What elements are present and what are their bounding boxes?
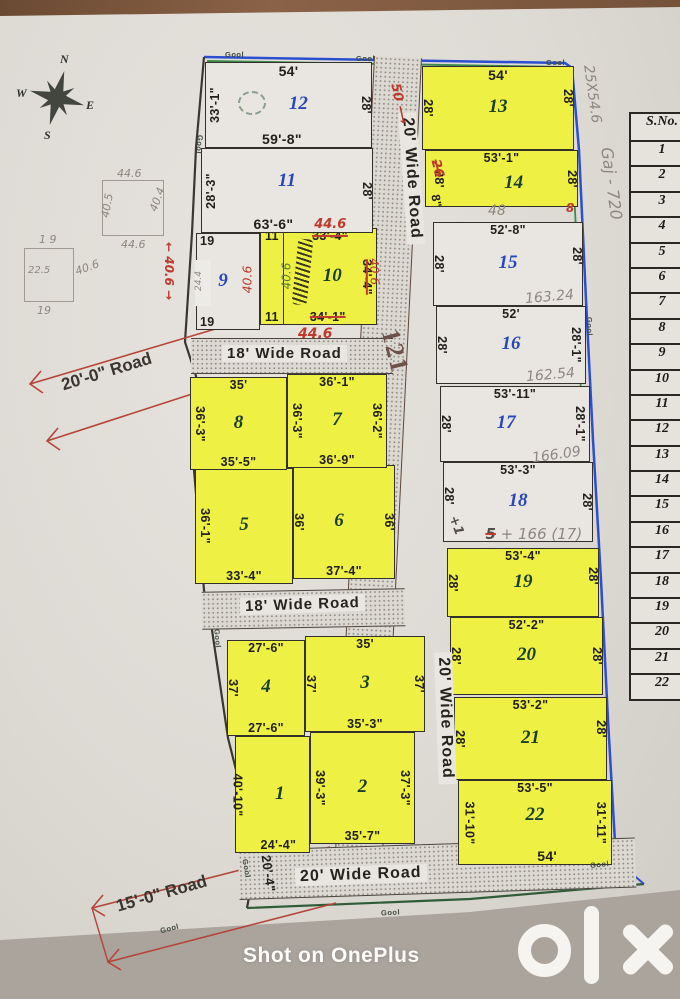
dim-left: 28'-3"	[204, 173, 218, 209]
sk2-left: 22.5	[28, 265, 50, 276]
pencil-area: 163.24	[524, 287, 574, 307]
dim-top: 36'-1"	[319, 375, 355, 389]
ink-scribble	[292, 238, 314, 305]
table-row: 1	[631, 140, 680, 165]
red-40-6: 40.6	[240, 266, 255, 294]
plot-22: 53'-5" 31'-10" 31'-11" 22 54'	[458, 780, 612, 865]
dim-top: 53'-1"	[484, 151, 520, 165]
dim-bottom: 59'-8"	[262, 131, 302, 147]
table-row: 16	[631, 521, 680, 546]
dim-right: 28'	[360, 182, 374, 200]
gool-label: Gool	[225, 50, 244, 59]
table-row: 10	[631, 369, 680, 394]
plot-7: 36'-1" 36'-3" 36'-2" 7 36'-9"	[287, 374, 387, 468]
table-row: 21	[631, 648, 680, 673]
plot-18: 53'-3" 28' +1 28' 18 5 + 166 (17)	[443, 462, 593, 542]
dim-top: 53'-3"	[500, 463, 536, 477]
table-row: 11	[631, 394, 680, 419]
dim-left: 36'-1"	[198, 508, 212, 544]
dim-left: 31'-10"	[462, 801, 476, 844]
photo-of-plot-map: N W E S 20' Wide Road 20' Wide Road 18' …	[0, 0, 680, 999]
plot-12: 54' 33'-1" 28' 12 59'-8"	[205, 62, 372, 148]
sk1-right: 40.4	[146, 186, 167, 213]
plot-20: 52'-2" 28' 28' 20	[450, 617, 603, 695]
dim-left: 36'-3"	[290, 403, 304, 439]
table-row: 13	[631, 445, 680, 470]
gool-label: Gool	[356, 54, 375, 63]
table-row: 5	[631, 242, 680, 267]
sk1-bottom: 44.6	[121, 238, 146, 251]
plot-number: 1	[275, 782, 285, 804]
dim-left: 37'	[226, 679, 240, 697]
dim-right: 37'-3"	[398, 770, 412, 806]
dim-left: 36'	[292, 513, 306, 531]
corner-19-bottom: 19	[200, 315, 215, 329]
dim-bottom: 34'-1"	[310, 310, 346, 324]
dim-top: 52'-2"	[509, 618, 545, 632]
table-row: 15	[631, 495, 680, 520]
dim-left: 28'	[439, 415, 453, 433]
dim-bottom: 35'-7"	[345, 829, 381, 843]
plot-9: 19 19 24.4 9 40.6	[196, 233, 260, 330]
olx-logo	[516, 902, 666, 997]
dim-bottom: 54'	[537, 848, 557, 864]
plot-number: 9	[218, 269, 228, 291]
olx-x-shape	[620, 924, 621, 925]
dim-right: 28'-1"	[573, 406, 587, 442]
dim-top: 27'-6"	[248, 641, 284, 655]
red-44-6-below-10: 44.6	[298, 326, 333, 342]
dim-bottom: 37'-4"	[326, 564, 362, 578]
plot-13: 54' 28' 28' 13	[422, 66, 574, 150]
pencil-plus1: +1	[446, 514, 467, 538]
gool-label: Gool	[546, 58, 565, 67]
compass-n: N	[60, 52, 69, 67]
plot-2: 39'-3" 37'-3" 2 35'-7"	[310, 732, 415, 844]
dim-right: 36'	[382, 513, 396, 531]
plot-3: 35' 37' 37' 3 35'-3"	[305, 636, 425, 732]
plot-6: 36' 36' 6 37'-4"	[293, 465, 395, 579]
red-40-6-road: 40.6	[367, 258, 382, 285]
compass-e: E	[86, 98, 94, 113]
plot-number: 3	[360, 672, 370, 694]
dim-right: 28'	[590, 647, 604, 665]
plot-number: 22	[526, 804, 545, 826]
strip-11-bottom: 11	[265, 310, 279, 324]
table-row: 19	[631, 597, 680, 622]
dim-right: 31'-11"	[594, 801, 608, 843]
gool-label: Gool	[585, 317, 595, 336]
pencil-5-struck: 5	[485, 525, 495, 543]
plot-16: 52' 28' 28'-1" 16 162.54	[436, 306, 586, 384]
pencil-166: + 166 (17)	[501, 525, 583, 543]
table-row: 6	[631, 267, 680, 292]
plot-number: 10	[323, 264, 342, 286]
dim-bottom: 27'-6"	[248, 721, 284, 735]
red-8: 8	[566, 201, 574, 215]
dim-bottom: 63'-6"	[253, 216, 293, 232]
plot-number: 7	[332, 409, 342, 431]
plot-number: 13	[489, 96, 508, 118]
dim-left: 28'	[421, 99, 435, 117]
compass-w: W	[16, 86, 27, 101]
dim-top: 54'	[488, 67, 508, 83]
serial-number-table: S.No. 1234567891011121314151617181920212…	[629, 112, 680, 701]
dim-left: 40'-10"	[230, 773, 244, 816]
table-row: 2	[631, 165, 680, 190]
dim-top: 35'	[230, 378, 248, 392]
green-40-6: 40.6	[279, 263, 293, 290]
plot-1: 40'-10" 1 24'-4"	[235, 736, 310, 853]
plot-number: 14	[504, 172, 523, 194]
plot-number: 20	[517, 644, 536, 666]
sk2-top: 1 9	[39, 233, 57, 246]
plot-number: 6	[334, 510, 344, 532]
dim-top: 52'-8"	[490, 223, 526, 237]
plot-number: 8	[234, 411, 244, 433]
dim-top: 35'	[356, 637, 374, 651]
table-row: 14	[631, 470, 680, 495]
dim-bottom: 35'-5"	[221, 455, 257, 469]
dim-right: 28'	[570, 247, 584, 265]
table-row: 4	[631, 216, 680, 241]
dim-right: 36'-2"	[370, 403, 384, 439]
dim-bottom: 33'-4"	[226, 569, 262, 583]
plot-number: 17	[497, 412, 516, 434]
red-44-6: 44.6	[314, 217, 346, 232]
table-row: 8	[631, 318, 680, 343]
compass-rose: N W E S	[14, 52, 100, 144]
corner-19-top: 19	[200, 234, 215, 248]
olx-o-shape	[518, 924, 571, 977]
pencil-sketch-1: 44.6 40.5 40.4 44.6	[102, 180, 164, 236]
gool-label: Gool	[194, 135, 205, 155]
dim-top: 53'-11"	[494, 387, 536, 401]
plot-number: 5	[239, 514, 249, 536]
gool-label: Gool	[381, 908, 401, 918]
dim-right: 28'	[565, 170, 579, 188]
dim-right: 28'	[586, 567, 600, 585]
dim-left: 33'-1"	[208, 87, 222, 123]
plot-8: 35' 36'-3" 8 35'-5"	[190, 377, 287, 470]
dim-left: 36'-3"	[193, 406, 207, 442]
pencil-24-4: 24.4	[194, 271, 204, 291]
serial-table-body: 12345678910111213141516171819202122	[631, 140, 680, 699]
red-26-struck: 26	[428, 158, 447, 179]
mid-road-1-label: 18' Wide Road	[222, 345, 347, 362]
dim-top: 52'	[502, 307, 520, 321]
plot-21: 53'-2" 28' 28' 21	[454, 697, 607, 780]
table-row: 12	[631, 419, 680, 444]
plot-number: 15	[499, 252, 518, 274]
table-header: S.No.	[631, 114, 680, 140]
dim-top: 53'-5"	[517, 781, 553, 795]
red-40-6-left-boundary: ← 40.6 →	[162, 242, 176, 300]
dim-right: 37'	[412, 675, 426, 693]
dim-left: 28'	[442, 487, 456, 505]
plot-15: 52'-8" 28' 28' 15 163.24	[433, 222, 583, 306]
table-row: 17	[631, 546, 680, 571]
plot-number: 11	[278, 170, 296, 192]
plot-number: 4	[261, 676, 271, 698]
dim-right: 28'	[359, 96, 373, 114]
plot-5: 36'-1" 5 33'-4"	[195, 468, 293, 584]
dim-top: 53'-2"	[513, 698, 549, 712]
table-row: 18	[631, 572, 680, 597]
dim-corner-8in: 8"	[428, 193, 444, 208]
compass-star-minor	[30, 71, 85, 126]
plot-number: 21	[521, 726, 540, 748]
gool-label: Gool	[212, 629, 223, 649]
plot-17: 53'-11" 28' 28'-1" 17 166.09	[440, 386, 590, 462]
dim-right: 28'-1"	[569, 327, 583, 363]
table-row: 3	[631, 191, 680, 216]
dim-left: 28'	[432, 255, 446, 273]
plot-19: 53'-4" 28' 28' 19	[447, 548, 599, 617]
white-patch: 24.4	[195, 260, 211, 306]
olx-bar-shape	[584, 906, 599, 984]
pencil-area: 162.54	[525, 365, 575, 385]
dim-bottom: 24'-4"	[260, 838, 296, 852]
dim-left: 28'	[446, 574, 460, 592]
plot-10: 11 11 40.6 33'-4" 34'-4" 10 34'-1"	[260, 228, 377, 325]
plot-number: 12	[289, 93, 308, 115]
plot-number: 16	[502, 333, 521, 355]
dim-bottom: 35'-3"	[347, 717, 383, 731]
plot-number: 19	[514, 570, 533, 592]
pencil-48: 48	[488, 203, 506, 219]
dashed-circle	[238, 91, 266, 115]
dim-right: 28'	[561, 89, 575, 107]
plot-number: 18	[509, 490, 528, 512]
dim-right: 28'	[594, 720, 608, 738]
watermark-text: Shot on OnePlus	[243, 944, 420, 968]
sk1-left: 40.5	[99, 192, 116, 218]
table-row: 22	[631, 673, 680, 698]
pencil-area-struck: 5 + 166 (17)	[485, 525, 582, 543]
dim-top: 53'-4"	[505, 549, 541, 563]
sk2-bottom: 19	[37, 304, 51, 317]
dim-left: 39'-3"	[313, 770, 327, 806]
compass-s: S	[44, 128, 51, 143]
plot-14: 53'-1" 28' 26 28' 14 8"	[425, 150, 578, 207]
table-row: 9	[631, 343, 680, 368]
plot-11: 28'-3" 28' 11 63'-6" 44.6	[201, 148, 373, 233]
sk1-top: 44.6	[117, 167, 142, 180]
dim-left: 37'	[304, 675, 318, 693]
table-row: 7	[631, 292, 680, 317]
plot-number: 2	[358, 776, 368, 798]
dim-right: 28'	[580, 493, 594, 511]
dim-bottom: 36'-9"	[319, 453, 355, 467]
plot-4: 27'-6" 37' 4 27'-6"	[227, 640, 305, 736]
dim-left: 28'	[435, 336, 449, 354]
dim-top: 54'	[279, 63, 299, 79]
pencil-sketch-2: 1 9 22.5 40.6 19	[24, 248, 74, 302]
table-row: 20	[631, 622, 680, 647]
